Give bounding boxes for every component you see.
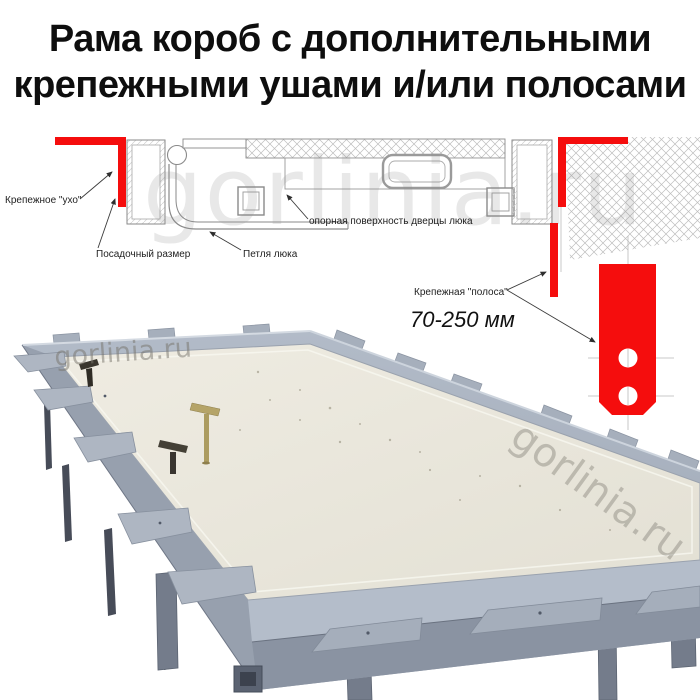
- fixing-strip-detail: [588, 236, 674, 430]
- fixing-strip-section: [550, 223, 558, 297]
- label-fixing-ear: Крепежное "ухо": [5, 195, 82, 206]
- product-image: Рама короб с дополнительными крепежными …: [0, 0, 700, 700]
- label-strip-dimension: 70-250 мм: [410, 307, 515, 332]
- product-photo: gorlinia.ru gorlinia.ru: [14, 324, 700, 700]
- label-hinge: Петля люка: [243, 249, 298, 260]
- label-fixing-strip: Крепежная "полоса": [414, 287, 508, 298]
- corner-tube-section: [234, 666, 262, 692]
- page-title: Рама короб с дополнительными крепежными …: [0, 16, 700, 109]
- title-line-1: Рама короб с дополнительными: [0, 16, 700, 62]
- label-seat-size: Посадочный размер: [96, 249, 191, 260]
- label-support-surface: опорная поверхность дверцы люка: [309, 216, 473, 227]
- title-line-2: крепежными ушами и/или полосами: [0, 62, 700, 108]
- watermark-drawing: gorlinia.ru: [143, 138, 644, 247]
